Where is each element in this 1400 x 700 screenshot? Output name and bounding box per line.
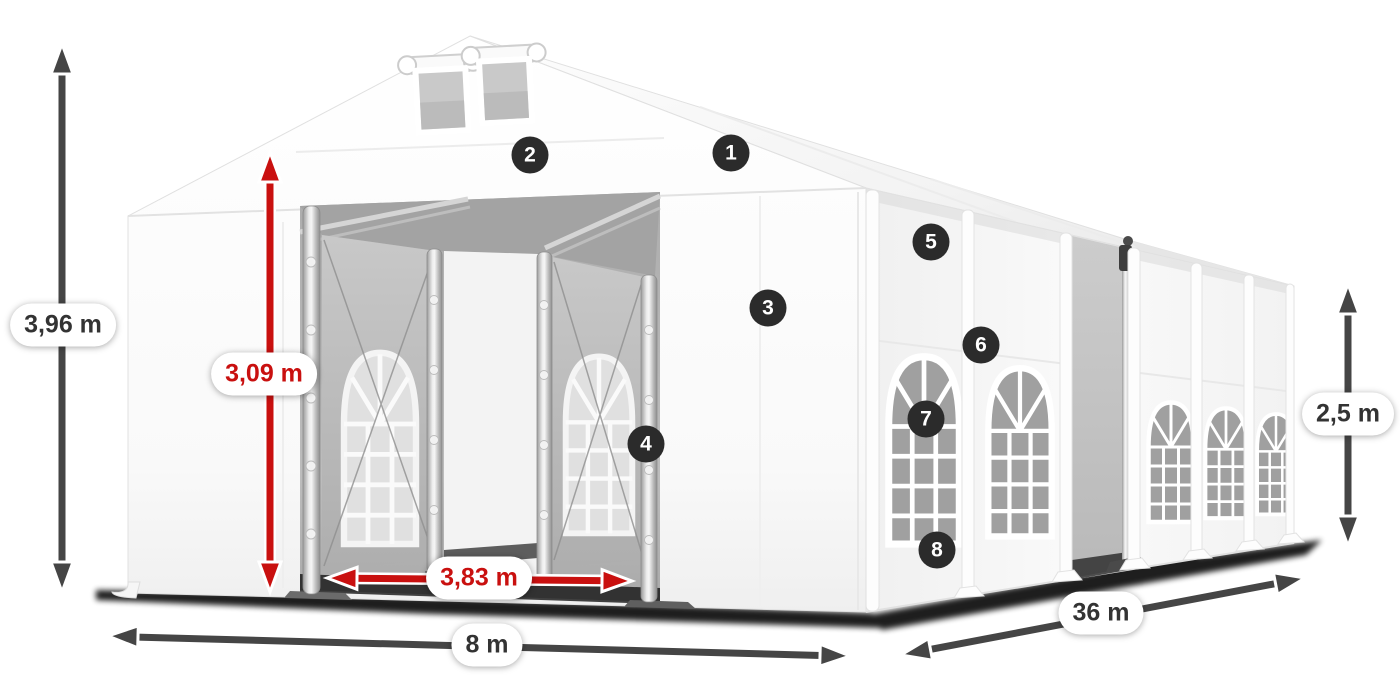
side-window — [1149, 403, 1194, 523]
feature-marker-8: 8 — [919, 532, 956, 569]
dimension-label-entrance-height: 3,09 m — [211, 353, 317, 396]
dimension-label-entrance-width: 3,83 m — [426, 557, 532, 600]
feature-marker-4: 4 — [628, 426, 665, 463]
feature-marker-6: 6 — [963, 327, 1000, 364]
side-window — [988, 368, 1051, 536]
side-window — [1205, 408, 1246, 518]
tent-dimensions-diagram: 3,96 m 3,09 m 3,83 m 8 m 36 m 2,5 m 1 2 … — [0, 0, 1400, 700]
tent-illustration — [0, 0, 1400, 700]
feature-marker-1: 1 — [713, 135, 750, 172]
dimension-label-side-height: 2,5 m — [1302, 393, 1394, 436]
side-window — [889, 357, 960, 544]
dimension-label-length: 36 m — [1059, 592, 1144, 635]
inner-door-right — [552, 257, 644, 568]
dimension-label-width: 8 m — [451, 624, 522, 667]
feature-marker-7: 7 — [908, 401, 945, 438]
feature-marker-2: 2 — [512, 137, 549, 174]
feature-marker-5: 5 — [913, 224, 950, 261]
inner-door-left — [322, 235, 436, 571]
feature-marker-3: 3 — [750, 290, 787, 327]
front-entrance-opening — [284, 192, 696, 609]
dimension-label-total-height: 3,96 m — [10, 304, 116, 347]
